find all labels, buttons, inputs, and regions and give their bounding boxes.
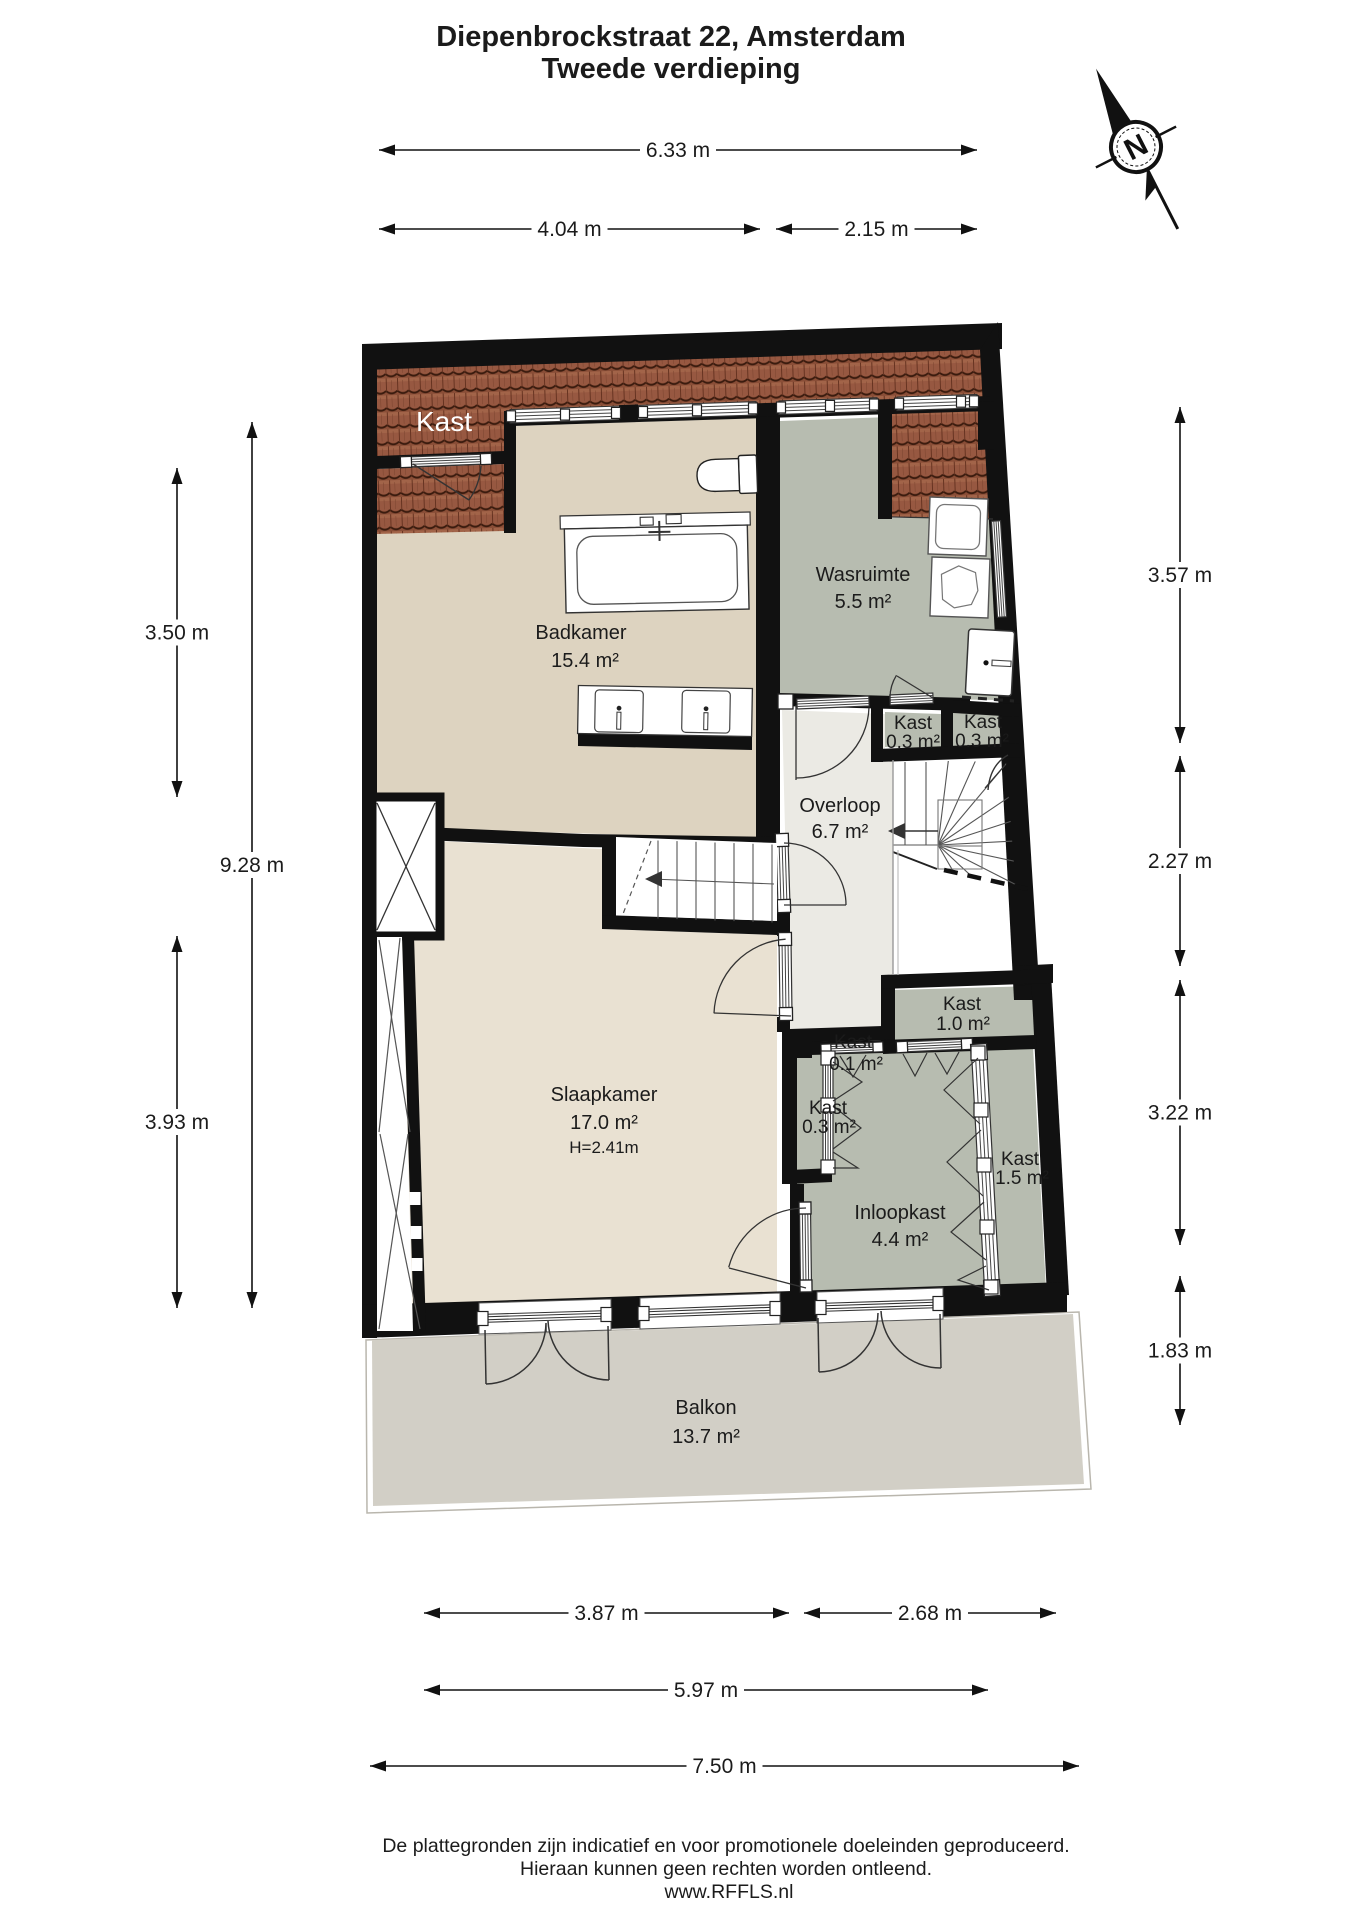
svg-text:Inloopkast: Inloopkast xyxy=(854,1202,946,1224)
svg-text:Kast: Kast xyxy=(964,712,1003,733)
svg-text:2.27 m: 2.27 m xyxy=(1148,850,1212,873)
svg-text:6.33 m: 6.33 m xyxy=(646,139,710,162)
svg-text:Kast: Kast xyxy=(834,1032,873,1053)
svg-text:De plattegronden zijn indicati: De plattegronden zijn indicatief en voor… xyxy=(382,1835,1069,1857)
svg-text:5.97 m: 5.97 m xyxy=(674,1679,738,1702)
svg-text:Badkamer: Badkamer xyxy=(535,622,626,644)
svg-text:Kast: Kast xyxy=(416,406,472,437)
svg-text:Kast: Kast xyxy=(943,994,982,1015)
svg-text:Wasruimte: Wasruimte xyxy=(816,564,911,586)
svg-text:3.22 m: 3.22 m xyxy=(1148,1102,1212,1125)
svg-text:3.93 m: 3.93 m xyxy=(145,1111,209,1134)
svg-text:3.87 m: 3.87 m xyxy=(574,1602,638,1625)
svg-text:0.3 m²: 0.3 m² xyxy=(886,732,940,753)
svg-text:15.4 m²: 15.4 m² xyxy=(551,650,619,672)
svg-text:2.68 m: 2.68 m xyxy=(898,1602,962,1625)
svg-text:2.15 m: 2.15 m xyxy=(844,218,908,241)
svg-text:Kast: Kast xyxy=(1001,1149,1040,1170)
svg-text:Kast: Kast xyxy=(809,1098,848,1119)
svg-text:H=2.41m: H=2.41m xyxy=(569,1138,638,1157)
svg-text:1.5 m²: 1.5 m² xyxy=(995,1168,1049,1189)
svg-text:Diepenbrockstraat 22, Amsterda: Diepenbrockstraat 22, Amsterdam xyxy=(436,21,906,53)
svg-text:3.57 m: 3.57 m xyxy=(1148,564,1212,587)
svg-text:0.1 m²: 0.1 m² xyxy=(829,1054,883,1075)
svg-text:Kast: Kast xyxy=(894,713,933,734)
svg-text:Slaapkamer: Slaapkamer xyxy=(551,1084,658,1106)
svg-text:6.7 m²: 6.7 m² xyxy=(812,821,869,843)
svg-text:4.4 m²: 4.4 m² xyxy=(872,1229,929,1251)
svg-text:3.50 m: 3.50 m xyxy=(145,622,209,645)
svg-text:1.0 m²: 1.0 m² xyxy=(936,1014,990,1035)
svg-text:Hieraan kunnen geen rechten wo: Hieraan kunnen geen rechten worden ontle… xyxy=(520,1858,932,1880)
svg-text:5.5 m²: 5.5 m² xyxy=(835,591,892,613)
svg-text:9.28 m: 9.28 m xyxy=(220,854,284,877)
svg-text:Tweede verdieping: Tweede verdieping xyxy=(542,53,801,85)
svg-text:0.3 m²: 0.3 m² xyxy=(802,1117,856,1138)
svg-text:4.04 m: 4.04 m xyxy=(537,218,601,241)
svg-text:1.83 m: 1.83 m xyxy=(1148,1340,1212,1363)
svg-text:13.7 m²: 13.7 m² xyxy=(672,1426,740,1448)
svg-text:7.50 m: 7.50 m xyxy=(692,1755,756,1778)
svg-text:0.3 m²: 0.3 m² xyxy=(955,731,1009,752)
svg-text:www.RFFLS.nl: www.RFFLS.nl xyxy=(664,1881,794,1903)
svg-text:Balkon: Balkon xyxy=(675,1397,736,1419)
svg-text:Overloop: Overloop xyxy=(799,795,880,817)
svg-text:17.0 m²: 17.0 m² xyxy=(570,1112,638,1134)
